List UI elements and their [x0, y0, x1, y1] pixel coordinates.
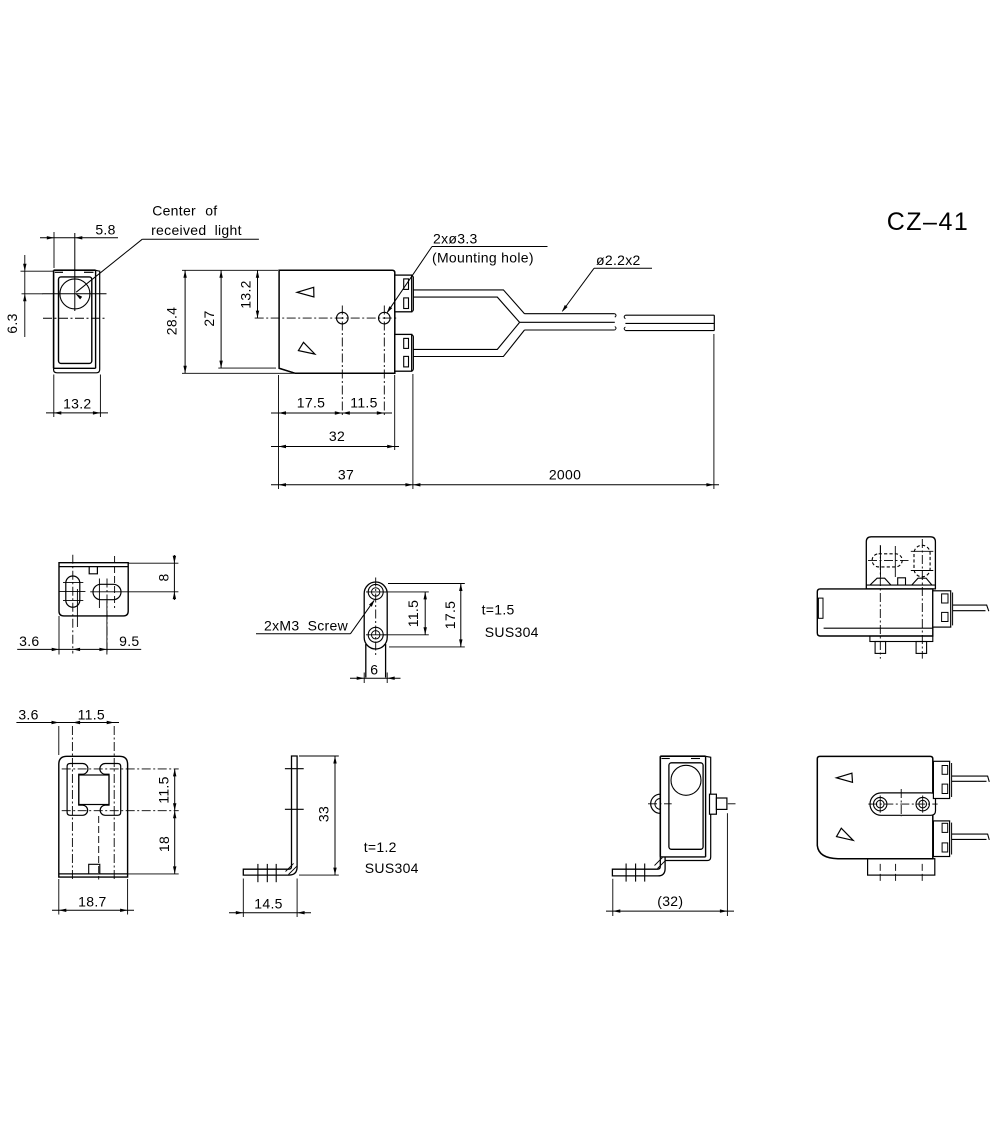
svg-text:received light: received light — [151, 222, 242, 238]
svg-text:ø2.2x2: ø2.2x2 — [596, 252, 641, 268]
svg-text:11.5: 11.5 — [350, 395, 377, 411]
svg-text:18.7: 18.7 — [78, 894, 106, 910]
svg-text:SUS304: SUS304 — [485, 624, 539, 640]
svg-text:18: 18 — [156, 836, 172, 852]
svg-text:t=1.5: t=1.5 — [482, 602, 515, 618]
svg-text:SUS304: SUS304 — [365, 860, 419, 876]
svg-text:27: 27 — [201, 310, 217, 326]
svg-text:17.5: 17.5 — [297, 395, 325, 411]
svg-text:(Mounting hole): (Mounting hole) — [432, 250, 534, 266]
svg-text:2000: 2000 — [549, 466, 581, 482]
svg-text:Center of: Center of — [152, 203, 217, 219]
svg-text:9.5: 9.5 — [119, 633, 139, 649]
svg-text:14.5: 14.5 — [254, 896, 282, 912]
svg-text:13.2: 13.2 — [238, 280, 254, 308]
svg-text:11.5: 11.5 — [405, 600, 421, 627]
svg-text:5.8: 5.8 — [95, 222, 115, 238]
svg-text:11.5: 11.5 — [155, 776, 171, 803]
svg-text:37: 37 — [338, 466, 354, 482]
svg-text:t=1.2: t=1.2 — [364, 839, 397, 855]
svg-text:28.4: 28.4 — [164, 307, 180, 335]
svg-text:32: 32 — [329, 428, 345, 444]
svg-text:(32): (32) — [657, 893, 683, 909]
svg-text:3.6: 3.6 — [18, 707, 38, 723]
svg-text:33: 33 — [315, 806, 331, 822]
svg-text:6: 6 — [370, 662, 378, 678]
svg-text:CZ–41: CZ–41 — [887, 208, 970, 236]
svg-text:11.5: 11.5 — [78, 707, 105, 723]
svg-text:2xø3.3: 2xø3.3 — [433, 231, 478, 247]
svg-text:6.3: 6.3 — [4, 313, 20, 333]
svg-text:3.6: 3.6 — [19, 633, 39, 649]
svg-text:8: 8 — [156, 573, 172, 581]
svg-text:17.5: 17.5 — [442, 601, 458, 629]
svg-text:13.2: 13.2 — [63, 396, 91, 412]
svg-text:2xM3 Screw: 2xM3 Screw — [264, 618, 349, 634]
